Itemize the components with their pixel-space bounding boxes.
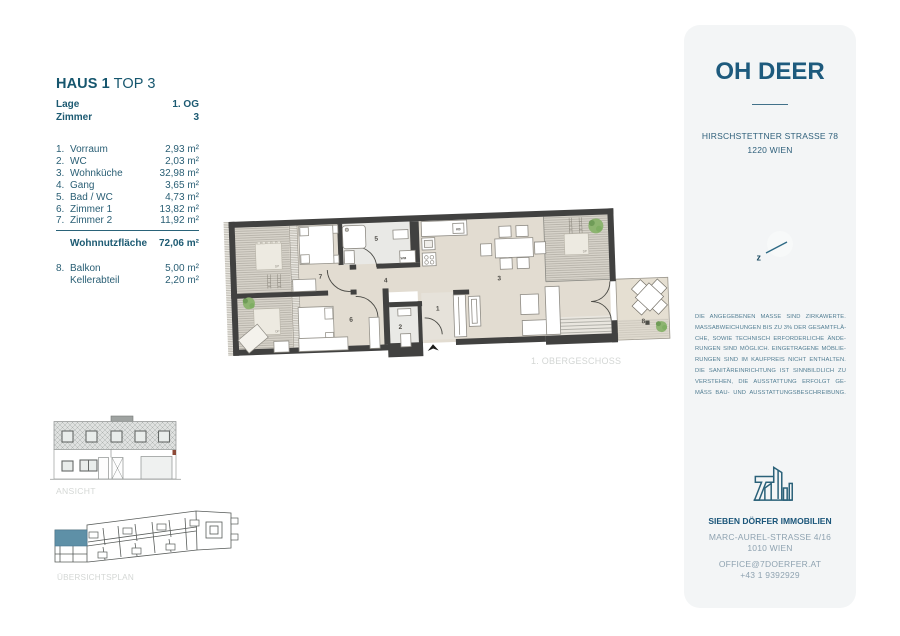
- svg-text:5: 5: [374, 236, 378, 243]
- svg-text:ANSICHT: ANSICHT: [56, 486, 96, 496]
- svg-text:2: 2: [398, 324, 402, 331]
- svg-text:DP: DP: [583, 249, 587, 253]
- svg-text:DP: DP: [275, 264, 279, 268]
- svg-text:KB: KB: [456, 227, 461, 231]
- svg-text:1: 1: [436, 305, 440, 312]
- svg-text:7: 7: [319, 274, 323, 281]
- svg-text:ÜBERSICHTSPLAN: ÜBERSICHTSPLAN: [57, 572, 134, 582]
- svg-text:4: 4: [384, 277, 388, 284]
- svg-text:6: 6: [349, 317, 353, 324]
- svg-text:z: z: [757, 253, 762, 263]
- svg-text:3: 3: [497, 275, 501, 282]
- svg-text:WM: WM: [401, 256, 407, 260]
- svg-text:8: 8: [641, 318, 645, 325]
- svg-text:DP: DP: [275, 329, 279, 333]
